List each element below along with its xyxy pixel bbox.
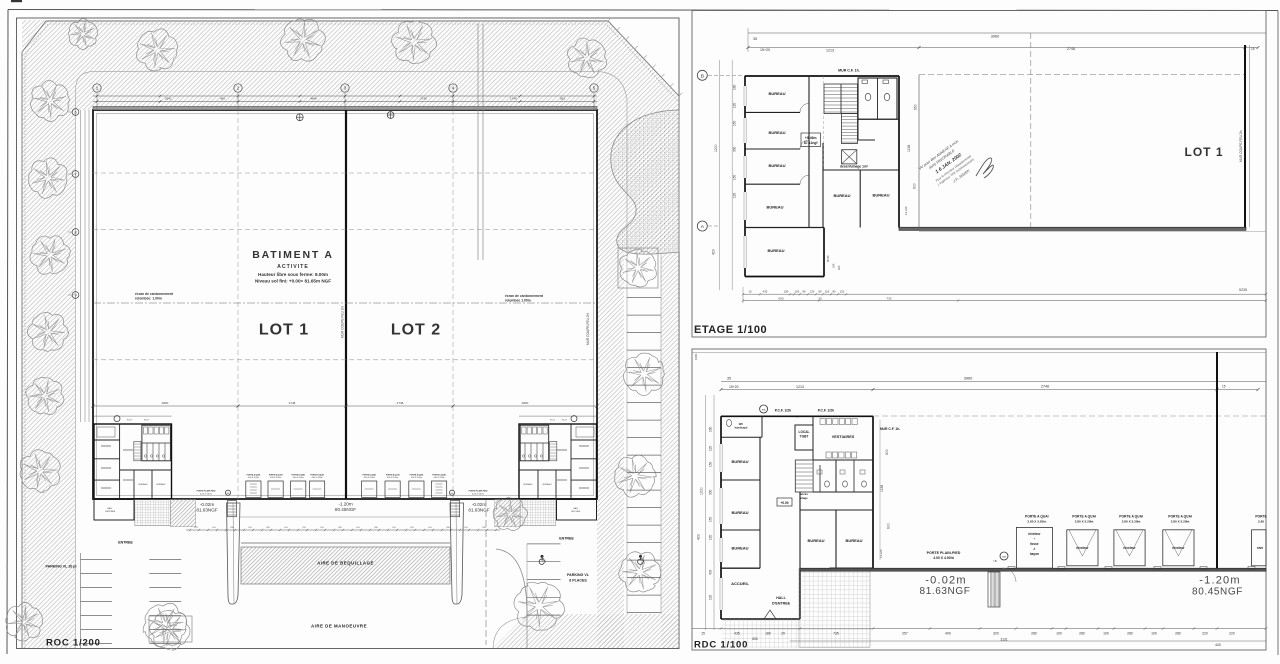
svg-text:P.C.F. 1/2h: P.C.F. 1/2h <box>775 409 792 413</box>
svg-text:PORTE A QUAI: PORTE A QUAI <box>1119 515 1143 519</box>
svg-text:écran de cantonnement: écran de cantonnement <box>135 292 174 296</box>
svg-text:BUREAU: BUREAU <box>731 459 748 464</box>
svg-text:119: 119 <box>825 289 830 293</box>
svg-text:152: 152 <box>840 289 845 293</box>
svg-text:MUR C.F. 1h.: MUR C.F. 1h. <box>880 427 901 431</box>
svg-text:150: 150 <box>733 120 737 126</box>
svg-text:B: B <box>701 73 704 79</box>
svg-text:BUREAU: BUREAU <box>157 483 166 486</box>
svg-text:2860: 2860 <box>522 401 529 405</box>
svg-text:180: 180 <box>709 426 713 432</box>
svg-text:440: 440 <box>1215 643 1221 647</box>
svg-text:120: 120 <box>733 102 737 108</box>
svg-text:2748: 2748 <box>1041 385 1049 389</box>
svg-text:BUREAU: BUREAU <box>768 163 785 168</box>
svg-text:120: 120 <box>810 289 815 293</box>
svg-text:4.00 X 4.20m: 4.00 X 4.20m <box>248 477 260 479</box>
svg-text:220: 220 <box>410 527 414 529</box>
svg-text:A: A <box>701 224 705 230</box>
svg-text:BUREAU: BUREAU <box>731 546 748 551</box>
svg-text:BUREAU: BUREAU <box>524 483 533 486</box>
svg-text:600: 600 <box>913 183 917 189</box>
svg-text:+0.00: +0.00 <box>780 501 788 505</box>
svg-text:MUR C.F. 1h.: MUR C.F. 1h. <box>838 69 860 73</box>
svg-text:35: 35 <box>727 377 731 381</box>
svg-text:100: 100 <box>1056 632 1062 636</box>
svg-text:100: 100 <box>464 527 468 529</box>
svg-text:4.00 X 4.00ht: 4.00 X 4.00ht <box>933 556 954 560</box>
svg-text:BUREAU: BUREAU <box>731 510 748 515</box>
svg-text:4.00 X 4.20m: 4.00 X 4.20m <box>311 477 323 479</box>
svg-text:BUREAU: BUREAU <box>807 538 824 543</box>
svg-text:D'ENTREE: D'ENTREE <box>105 511 116 513</box>
svg-text:120: 120 <box>709 534 713 540</box>
svg-text:1200: 1200 <box>700 487 704 495</box>
svg-text:LOT 1: LOT 1 <box>259 322 309 339</box>
svg-text:2.80 X 3.20ht: 2.80 X 3.20ht <box>1122 520 1141 524</box>
svg-text:7: 7 <box>74 172 76 176</box>
svg-text:2.80 X 3.20ht: 2.80 X 3.20ht <box>1075 520 1094 524</box>
svg-text:650: 650 <box>914 104 918 110</box>
svg-text:ACTIVITE: ACTIVITE <box>277 264 309 270</box>
svg-text:ACCUEIL: ACCUEIL <box>731 581 749 586</box>
svg-text:100: 100 <box>1103 632 1109 636</box>
svg-text:8: 8 <box>74 230 76 234</box>
svg-text:désenfumage 1m²: désenfumage 1m² <box>840 165 869 169</box>
svg-text:435: 435 <box>734 632 740 636</box>
svg-text:2748: 2748 <box>289 401 296 405</box>
svg-text:80: 80 <box>802 289 806 293</box>
svg-text:2.80 X 3.20ht: 2.80 X 3.20ht <box>1171 520 1190 524</box>
svg-text:3131: 3131 <box>1000 638 1007 642</box>
svg-text:PORTE A QUAI: PORTE A QUAI <box>1025 515 1049 519</box>
svg-text:5235: 5235 <box>1239 288 1247 292</box>
svg-text:100: 100 <box>1151 632 1157 636</box>
svg-text:BATIMENT A: BATIMENT A <box>252 249 334 261</box>
svg-text:+: + <box>1033 537 1035 541</box>
svg-text:220: 220 <box>194 527 198 529</box>
svg-text:600: 600 <box>887 523 891 529</box>
svg-text:BUREAU: BUREAU <box>833 193 850 198</box>
svg-text:4.00 X 4.20m: 4.00 X 4.20m <box>387 477 399 479</box>
svg-text:81.63NGF: 81.63NGF <box>920 586 971 597</box>
svg-text:ENTREE: ENTREE <box>559 537 574 541</box>
svg-text:BUREAU: BUREAU <box>766 205 783 210</box>
svg-text:2748: 2748 <box>1067 47 1075 51</box>
svg-text:6: 6 <box>74 110 76 114</box>
svg-text:HALL: HALL <box>776 596 786 600</box>
svg-text:2.80 X 3.20ht: 2.80 X 3.20ht <box>1027 520 1046 524</box>
svg-text:300: 300 <box>709 489 713 495</box>
svg-text:9: 9 <box>74 293 76 297</box>
svg-text:PORTE A QUAI: PORTE A QUAI <box>1072 515 1096 519</box>
svg-text:120: 120 <box>709 445 713 451</box>
svg-text:-0.02m: -0.02m <box>925 575 966 587</box>
svg-text:BUREAU: BUREAU <box>845 538 862 543</box>
svg-text:220: 220 <box>1202 632 1208 636</box>
svg-text:600: 600 <box>885 449 889 455</box>
svg-text:niveleur: niveleur <box>1123 546 1136 550</box>
svg-text:4.00 X 4.20m: 4.00 X 4.20m <box>411 477 423 479</box>
svg-text:à: à <box>1034 547 1036 551</box>
svg-text:100: 100 <box>212 527 216 529</box>
svg-text:HALL: HALL <box>573 507 579 510</box>
svg-text:BUREAU: BUREAU <box>872 193 889 198</box>
svg-text:280: 280 <box>374 527 378 529</box>
svg-text:100: 100 <box>392 527 396 529</box>
svg-text:RIA: RIA <box>762 409 766 412</box>
svg-text:735: 735 <box>833 632 839 636</box>
svg-text:PORTE PLAIN-PIED: PORTE PLAIN-PIED <box>469 490 488 493</box>
svg-text:4.00 X 4.00m: 4.00 X 4.00m <box>472 493 484 495</box>
svg-text:TGBT: TGBT <box>800 435 809 439</box>
svg-text:PORTE A QUAI: PORTE A QUAI <box>386 473 400 476</box>
svg-text:80: 80 <box>832 289 836 293</box>
svg-text:100: 100 <box>248 527 252 529</box>
svg-text:PORTE A QUAI: PORTE A QUAI <box>310 473 324 476</box>
svg-text:15+20: 15+20 <box>760 48 770 52</box>
svg-text:80: 80 <box>818 289 822 293</box>
svg-text:120: 120 <box>733 192 737 198</box>
svg-text:3960: 3960 <box>964 377 972 381</box>
svg-text:2860: 2860 <box>162 401 169 405</box>
svg-text:PORTE A QUAI: PORTE A QUAI <box>247 473 261 476</box>
svg-text:BUREAU: BUREAU <box>768 130 785 135</box>
svg-text:280: 280 <box>266 527 270 529</box>
svg-text:ETAGE 1/100: ETAGE 1/100 <box>694 324 767 336</box>
svg-text:220: 220 <box>1229 632 1235 636</box>
svg-text:PORTE A QUAI: PORTE A QUAI <box>1168 515 1192 519</box>
svg-text:300: 300 <box>733 146 737 152</box>
svg-text:1213: 1213 <box>796 385 804 389</box>
svg-text:423: 423 <box>712 249 716 255</box>
svg-text:RIA: RIA <box>1002 556 1006 559</box>
svg-text:4.00 X 4.20m: 4.00 X 4.20m <box>293 477 305 479</box>
svg-text:80 80: 80 80 <box>826 255 830 262</box>
svg-text:240: 240 <box>832 263 836 268</box>
svg-text:1213: 1213 <box>826 49 834 53</box>
svg-text:150: 150 <box>709 461 713 467</box>
svg-text:423: 423 <box>697 534 701 540</box>
svg-text:P.C.F. 1/2h: P.C.F. 1/2h <box>818 409 835 413</box>
svg-text:1081: 1081 <box>694 353 698 360</box>
svg-text:1746: 1746 <box>510 97 517 101</box>
svg-text:retombée 1.00m: retombée 1.00m <box>505 299 531 303</box>
svg-text:320: 320 <box>993 632 999 636</box>
svg-text:8 PLACES: 8 PLACES <box>569 579 587 583</box>
svg-text:650: 650 <box>752 637 758 641</box>
svg-text:15+20: 15+20 <box>729 385 739 389</box>
svg-text:I-B: I-B <box>993 559 997 563</box>
svg-text:PORTE A QUAI: PORTE A QUAI <box>269 473 283 476</box>
svg-text:81.63NGF: 81.63NGF <box>468 508 489 513</box>
svg-text:BUREAU: BUREAU <box>543 483 552 486</box>
svg-text:PARKING VL 20 pl: PARKING VL 20 pl <box>45 565 76 569</box>
svg-text:ACCUEIL: ACCUEIL <box>571 510 581 513</box>
svg-text:LOT 1: LOT 1 <box>1184 145 1223 159</box>
svg-text:2641: 2641 <box>165 97 172 101</box>
svg-text:étage: étage <box>800 496 808 500</box>
svg-text:1200: 1200 <box>714 144 718 152</box>
svg-text:2.80: 2.80 <box>1258 520 1264 524</box>
svg-text:Niveau sol fini: +0.00= 81.65m: Niveau sol fini: +0.00= 81.65m NGF <box>255 279 331 284</box>
svg-text:BUREAU: BUREAU <box>767 248 784 253</box>
svg-text:LOCAL: LOCAL <box>799 430 810 434</box>
svg-text:280: 280 <box>1127 632 1133 636</box>
svg-text:280: 280 <box>1175 632 1181 636</box>
svg-text:15: 15 <box>1251 47 1255 51</box>
svg-text:35: 35 <box>753 37 757 41</box>
svg-text:280: 280 <box>338 527 342 529</box>
svg-text:P.C.F.: P.C.F. <box>550 420 556 422</box>
svg-text:2748: 2748 <box>397 401 404 405</box>
svg-text:PORTE: PORTE <box>1255 515 1267 519</box>
svg-text:13+20: 13+20 <box>879 549 883 558</box>
svg-text:100: 100 <box>356 527 360 529</box>
svg-text:460: 460 <box>220 97 225 101</box>
svg-text:29: 29 <box>781 632 785 636</box>
svg-text:AIRE DE BEQUILLAGE: AIRE DE BEQUILLAGE <box>317 561 374 566</box>
svg-text:retombée: 1.00m: retombée: 1.00m <box>135 297 162 301</box>
svg-text:150: 150 <box>709 516 713 522</box>
svg-text:BUREAU: BUREAU <box>139 483 148 486</box>
svg-text:RDC 1/100: RDC 1/100 <box>694 640 748 651</box>
svg-text:280: 280 <box>1031 632 1037 636</box>
svg-text:WC: WC <box>739 422 743 426</box>
svg-text:écran de cantonnement: écran de cantonnement <box>505 294 544 298</box>
svg-text:180: 180 <box>784 289 789 293</box>
svg-text:257: 257 <box>902 632 908 636</box>
svg-text:P.C.F.: P.C.F. <box>562 420 568 422</box>
svg-text:P.C.F.: P.C.F. <box>144 420 150 422</box>
svg-text:PORTE PLAIN-PIED: PORTE PLAIN-PIED <box>197 490 216 493</box>
svg-text:Hauteur libre sous ferme: 8.00: Hauteur libre sous ferme: 8.00m <box>258 272 328 277</box>
svg-text:PARKING VL: PARKING VL <box>567 573 590 577</box>
svg-text:nive: nive <box>1257 546 1264 550</box>
svg-text:403: 403 <box>709 569 713 575</box>
svg-text:100: 100 <box>284 527 288 529</box>
svg-text:PORTE A QUAI: PORTE A QUAI <box>362 473 376 476</box>
svg-text:4.00 X 4.20m: 4.00 X 4.20m <box>270 477 282 479</box>
svg-text:AIRE DE MANOEUVRE: AIRE DE MANOEUVRE <box>311 624 367 629</box>
svg-text:103: 103 <box>795 289 800 293</box>
svg-text:180: 180 <box>733 84 737 90</box>
svg-text:15: 15 <box>701 632 705 636</box>
svg-text:PORTE A QUAI: PORTE A QUAI <box>410 473 424 476</box>
svg-text:80.45NGF: 80.45NGF <box>1192 587 1243 598</box>
svg-text:20: 20 <box>818 296 822 300</box>
svg-text:-1.20m: -1.20m <box>1199 575 1240 587</box>
svg-text:ROC 1/200: ROC 1/200 <box>46 637 101 648</box>
svg-text:120: 120 <box>709 594 713 600</box>
svg-text:87.11ngf: 87.11ngf <box>804 141 818 145</box>
svg-text:81.63NGF: 81.63NGF <box>196 508 217 513</box>
svg-text:280: 280 <box>1079 632 1085 636</box>
svg-text:hayon: hayon <box>1030 552 1039 556</box>
svg-text:80.45NGF: 80.45NGF <box>335 507 356 512</box>
svg-text:fosse: fosse <box>1030 542 1039 546</box>
svg-text:MUR COUPE-FEU 2H: MUR COUPE-FEU 2H <box>586 312 590 345</box>
svg-text:3960: 3960 <box>991 35 999 39</box>
svg-text:P.C.F.: P.C.F. <box>127 420 133 422</box>
svg-text:-1.20m: -1.20m <box>338 502 352 507</box>
svg-text:HALL: HALL <box>107 507 113 510</box>
svg-text:280: 280 <box>230 527 234 529</box>
svg-text:4946: 4946 <box>310 97 317 101</box>
svg-text:962: 962 <box>560 97 565 101</box>
svg-text:15: 15 <box>1222 385 1226 389</box>
svg-text:niveleur: niveleur <box>1172 546 1185 550</box>
svg-text:180: 180 <box>765 632 771 636</box>
svg-text:435: 435 <box>763 289 768 293</box>
svg-text:280: 280 <box>446 527 450 529</box>
svg-text:1198: 1198 <box>880 485 884 492</box>
svg-text:13+20: 13+20 <box>904 206 908 215</box>
svg-text:D'ENTREE: D'ENTREE <box>772 602 791 606</box>
svg-text:MUR COUPE-FEU 2h: MUR COUPE-FEU 2h <box>1239 130 1243 162</box>
svg-text:LOT 2: LOT 2 <box>391 322 441 339</box>
svg-text:1198: 1198 <box>907 145 911 152</box>
svg-text:niveleur: niveleur <box>1028 532 1041 536</box>
svg-text:100: 100 <box>320 527 324 529</box>
svg-text:PORTE PLAIN-PIED: PORTE PLAIN-PIED <box>927 551 961 555</box>
svg-text:handicapé: handicapé <box>735 426 748 430</box>
svg-text:PORTE A QUAI: PORTE A QUAI <box>432 473 446 476</box>
svg-text:MUR COUPE-FEU 2H: MUR COUPE-FEU 2H <box>341 305 345 338</box>
svg-text:400: 400 <box>837 265 841 270</box>
svg-text:4.00 X 4.00m: 4.00 X 4.00m <box>200 493 212 495</box>
svg-text:PORTE A QUAI: PORTE A QUAI <box>291 473 305 476</box>
svg-text:2746: 2746 <box>420 97 427 101</box>
svg-text:niveleur: niveleur <box>1076 546 1089 550</box>
svg-text:-0.02m: -0.02m <box>200 502 214 507</box>
svg-text:280: 280 <box>482 527 486 529</box>
svg-text:650: 650 <box>778 296 783 300</box>
svg-text:+5.46m: +5.46m <box>805 136 817 140</box>
svg-text:735: 735 <box>886 296 891 300</box>
svg-text:100: 100 <box>428 527 432 529</box>
svg-text:4.00 X 4.20m: 4.00 X 4.20m <box>364 477 376 479</box>
svg-text:BUREAU: BUREAU <box>768 91 785 96</box>
svg-text:220: 220 <box>302 527 306 529</box>
svg-text:-0.02m: -0.02m <box>472 502 486 507</box>
svg-text:150: 150 <box>733 174 737 180</box>
svg-text:4.00 X 4.20m: 4.00 X 4.20m <box>433 477 445 479</box>
svg-text:15: 15 <box>748 289 752 293</box>
svg-text:ENTREE: ENTREE <box>118 541 133 545</box>
svg-text:400: 400 <box>945 632 951 636</box>
svg-text:VESTIAIRES: VESTIAIRES <box>832 435 855 439</box>
